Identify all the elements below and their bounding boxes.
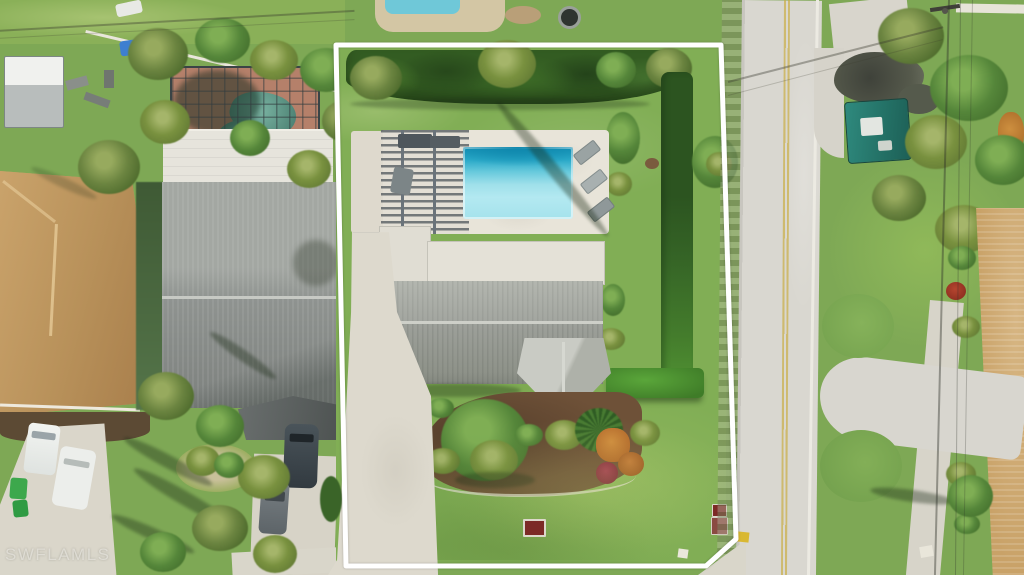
front-lawn-mottle bbox=[430, 410, 730, 560]
boat-under-teal-canopy bbox=[844, 98, 912, 164]
yard-equipment bbox=[104, 70, 114, 88]
palm-canopy bbox=[214, 452, 244, 478]
boat-console bbox=[860, 117, 883, 136]
yard-equipment bbox=[83, 92, 110, 108]
metal-shed bbox=[4, 56, 64, 128]
tree-canopy bbox=[975, 135, 1024, 185]
lanai-flat-roof-right bbox=[427, 241, 605, 285]
palm-canopy bbox=[238, 455, 290, 499]
corner-bush bbox=[601, 284, 625, 316]
tree-shadow-on-gray-roof bbox=[293, 240, 339, 286]
tree-canopy bbox=[878, 8, 944, 64]
white-debris bbox=[919, 545, 934, 558]
palm-canopy bbox=[192, 505, 248, 551]
croton-column-bush bbox=[954, 514, 980, 534]
croton-column-red bbox=[946, 282, 966, 300]
yellow-curb-mark bbox=[737, 531, 750, 542]
palm-over-hedge bbox=[596, 52, 636, 88]
driveway-hedge-bush bbox=[320, 476, 342, 522]
deck-path bbox=[351, 131, 383, 233]
patio-table bbox=[398, 134, 432, 148]
fire-pit bbox=[558, 6, 581, 29]
aerial-photo: SWFLAMLS bbox=[0, 0, 1024, 575]
tree-canopy bbox=[872, 175, 926, 221]
white-marker bbox=[677, 548, 688, 558]
yard-equipment bbox=[65, 75, 89, 90]
side-bush bbox=[606, 172, 632, 196]
rear-lot-dirt bbox=[505, 6, 541, 24]
side-bush bbox=[606, 112, 640, 164]
side-mulch-spot bbox=[645, 158, 659, 169]
palm-over-hedge bbox=[478, 40, 536, 88]
porch-ridge bbox=[562, 342, 565, 394]
watermark: SWFLAMLS bbox=[5, 545, 111, 565]
palm-canopy bbox=[250, 40, 298, 80]
palm-canopy bbox=[140, 100, 190, 144]
tan-roof-house bbox=[0, 166, 142, 416]
white-van bbox=[23, 422, 61, 476]
palm-canopy bbox=[128, 28, 188, 80]
boat-motor bbox=[878, 140, 893, 151]
palm-canopy bbox=[78, 140, 140, 194]
rear-lot-pool bbox=[385, 0, 460, 14]
tree-canopy bbox=[930, 55, 1008, 121]
gable-upper-slope bbox=[377, 281, 603, 323]
patio-chair bbox=[390, 166, 414, 195]
suv-windshield bbox=[289, 434, 313, 443]
palm-canopy bbox=[287, 150, 331, 188]
palm-over-hedge bbox=[350, 56, 402, 100]
van-roof-line bbox=[63, 458, 90, 468]
palm-canopy bbox=[253, 535, 297, 573]
patio-table bbox=[430, 136, 460, 148]
low-white-wall bbox=[956, 3, 1024, 13]
palm-canopy bbox=[230, 120, 270, 156]
green-trash-bin bbox=[12, 499, 29, 517]
palm-canopy bbox=[140, 532, 186, 572]
east-hedge bbox=[661, 72, 693, 382]
croton-column-bush bbox=[948, 246, 976, 270]
palm-canopy bbox=[196, 405, 244, 447]
utility-box bbox=[523, 519, 546, 537]
green-trash-bin bbox=[9, 477, 27, 499]
pergola bbox=[381, 130, 469, 234]
van-windshield bbox=[31, 431, 56, 441]
gray-house-ridge bbox=[162, 296, 339, 299]
flare-lawn-corner bbox=[822, 294, 894, 358]
palm-canopy bbox=[138, 372, 194, 420]
